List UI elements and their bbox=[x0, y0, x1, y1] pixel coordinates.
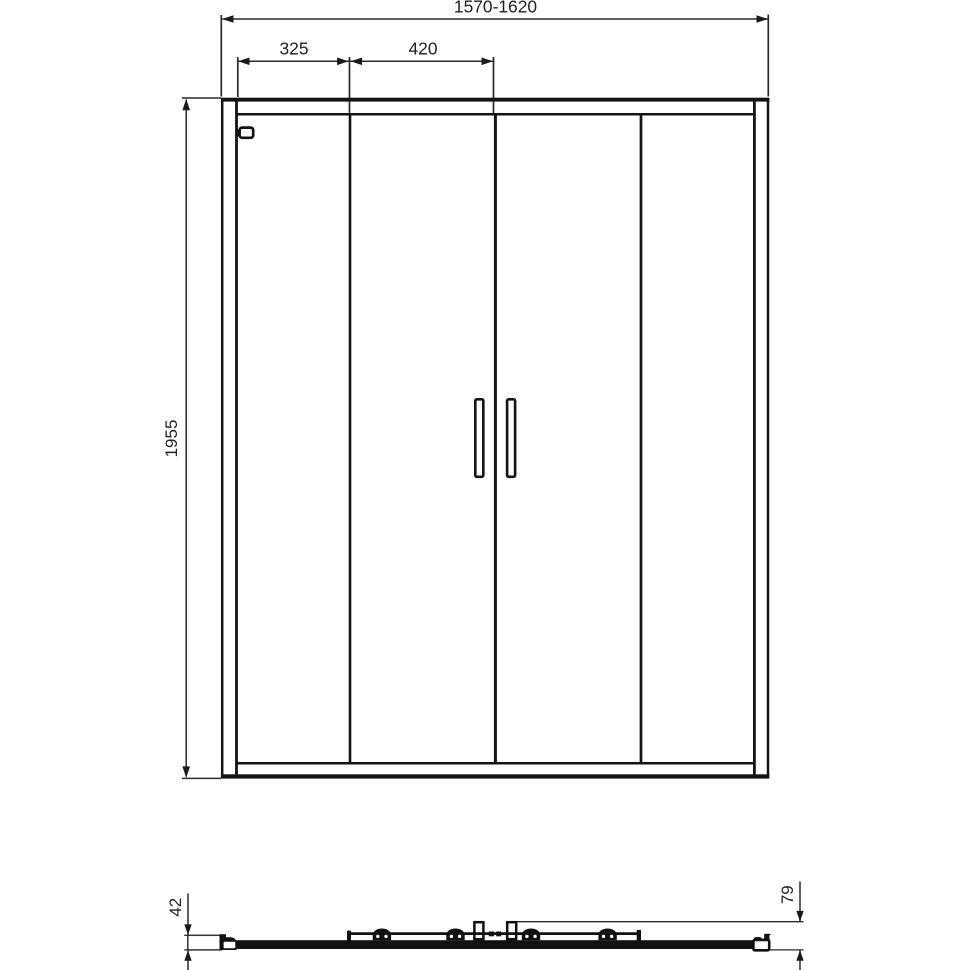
svg-text:420: 420 bbox=[408, 39, 437, 59]
svg-text:1570-1620: 1570-1620 bbox=[454, 0, 537, 17]
svg-text:325: 325 bbox=[279, 39, 308, 59]
svg-text:1955: 1955 bbox=[162, 420, 181, 458]
svg-text:79: 79 bbox=[778, 885, 797, 904]
svg-text:42: 42 bbox=[166, 898, 185, 917]
